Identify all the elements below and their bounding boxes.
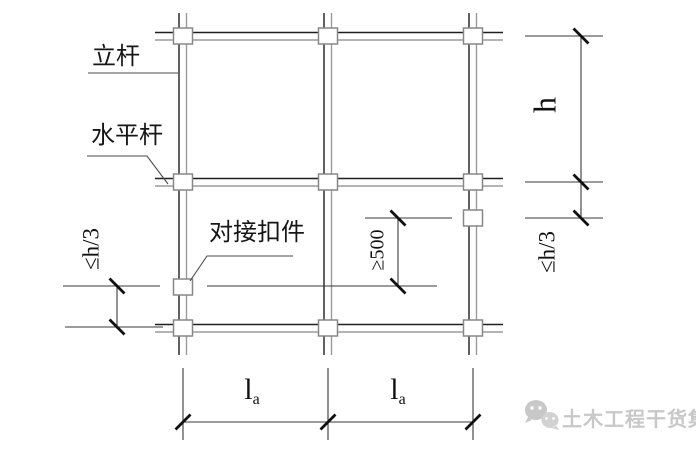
coupler	[464, 174, 483, 190]
butt-coupler-label: 对接扣件	[209, 219, 305, 246]
butt-coupler-leader	[190, 256, 293, 281]
scaffold-diagram: 立杆 水平杆 对接扣件 h ≤h/3 ≤h/3 ≥500	[0, 0, 696, 462]
story-height-value: h	[526, 97, 562, 113]
scaffold-diagram-canvas: 立杆 水平杆 对接扣件 h ≤h/3 ≤h/3 ≥500	[0, 0, 696, 462]
wechat-bubbles-icon	[525, 400, 559, 430]
span-right-value: la	[390, 373, 405, 408]
coupler	[319, 28, 338, 44]
coupler	[464, 28, 483, 44]
horizontal-pole-label: 水平杆	[91, 122, 163, 149]
span-left-value: la	[244, 373, 259, 408]
watermark: 土木工程干货集	[525, 400, 696, 431]
coupler	[174, 28, 193, 44]
butt-coupler	[464, 210, 483, 226]
label-horizontal-pole: 水平杆	[87, 122, 168, 184]
coupler-offset-left-value: ≤h/3	[78, 228, 103, 270]
label-vertical-pole: 立杆	[88, 43, 178, 73]
coupler-stagger-value: ≥500	[367, 230, 389, 271]
dimension-story-height: h ≤h/3	[525, 29, 603, 274]
couplers	[174, 28, 483, 336]
coupler-offset-right-value: ≤h/3	[534, 231, 559, 273]
coupler	[319, 320, 338, 336]
vertical-pole-label: 立杆	[92, 43, 140, 70]
coupler	[464, 320, 483, 336]
butt-coupler	[174, 279, 193, 295]
watermark-text: 土木工程干货集	[562, 407, 696, 431]
horizontal-pole-leader	[87, 156, 168, 184]
coupler	[319, 174, 338, 190]
dimension-coupler-offset-left: ≤h/3	[63, 228, 163, 335]
coupler	[174, 174, 193, 190]
dimension-spans: la la	[176, 368, 481, 440]
coupler	[174, 320, 193, 336]
label-butt-coupler: 对接扣件	[190, 219, 305, 281]
